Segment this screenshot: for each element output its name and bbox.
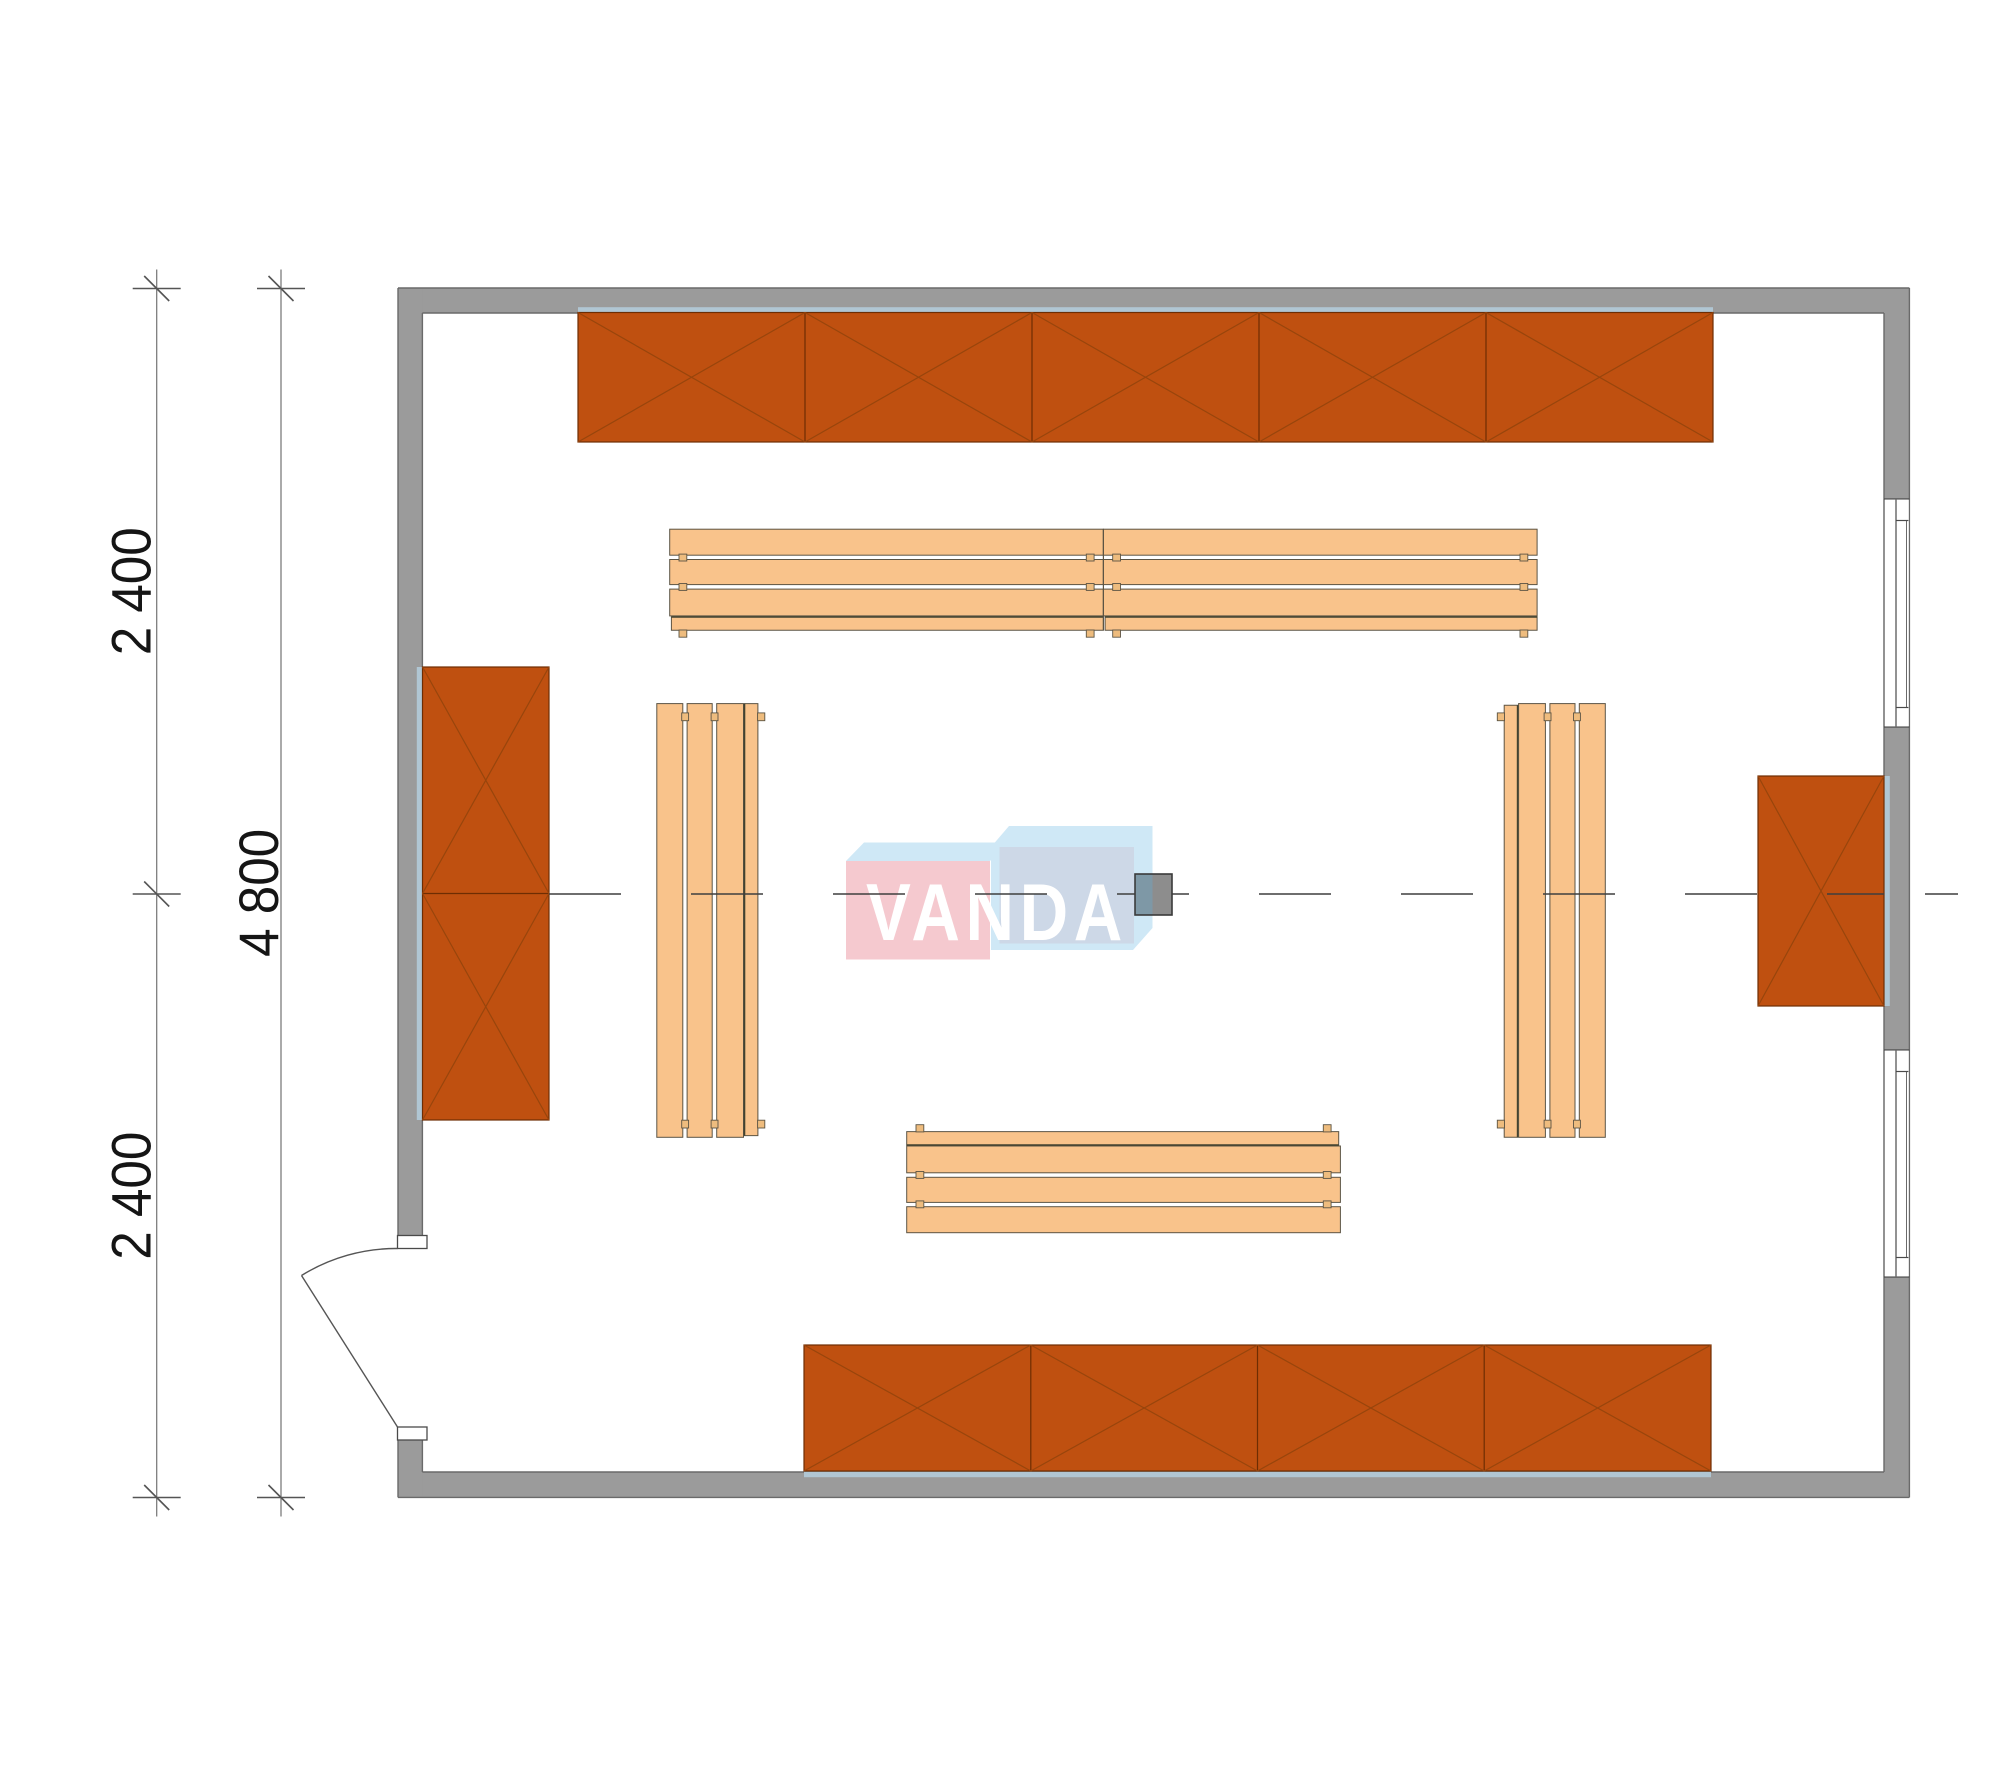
svg-text:VANDA: VANDA: [866, 867, 1128, 957]
svg-text:2 400: 2 400: [100, 1132, 163, 1260]
svg-text:2 400: 2 400: [100, 527, 163, 655]
svg-text:4 800: 4 800: [227, 829, 290, 957]
